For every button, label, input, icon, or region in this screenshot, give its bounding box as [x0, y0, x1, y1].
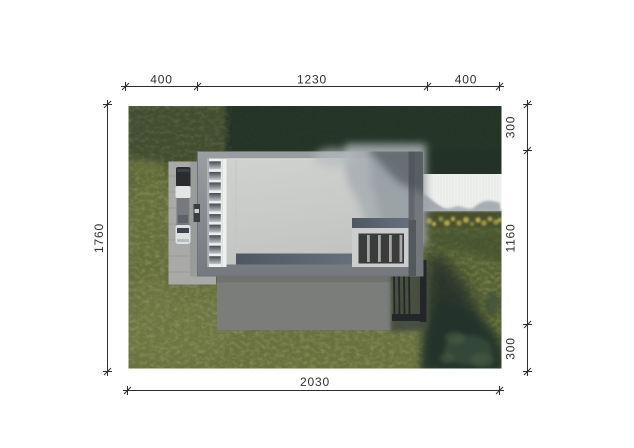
svg-text:1760: 1760	[92, 223, 106, 253]
svg-text:1160: 1160	[504, 223, 518, 252]
svg-text:300: 300	[504, 116, 518, 138]
svg-text:400: 400	[455, 73, 477, 87]
svg-text:1230: 1230	[297, 73, 327, 87]
svg-text:400: 400	[150, 73, 172, 87]
svg-text:2030: 2030	[300, 375, 330, 389]
svg-text:300: 300	[504, 337, 518, 359]
